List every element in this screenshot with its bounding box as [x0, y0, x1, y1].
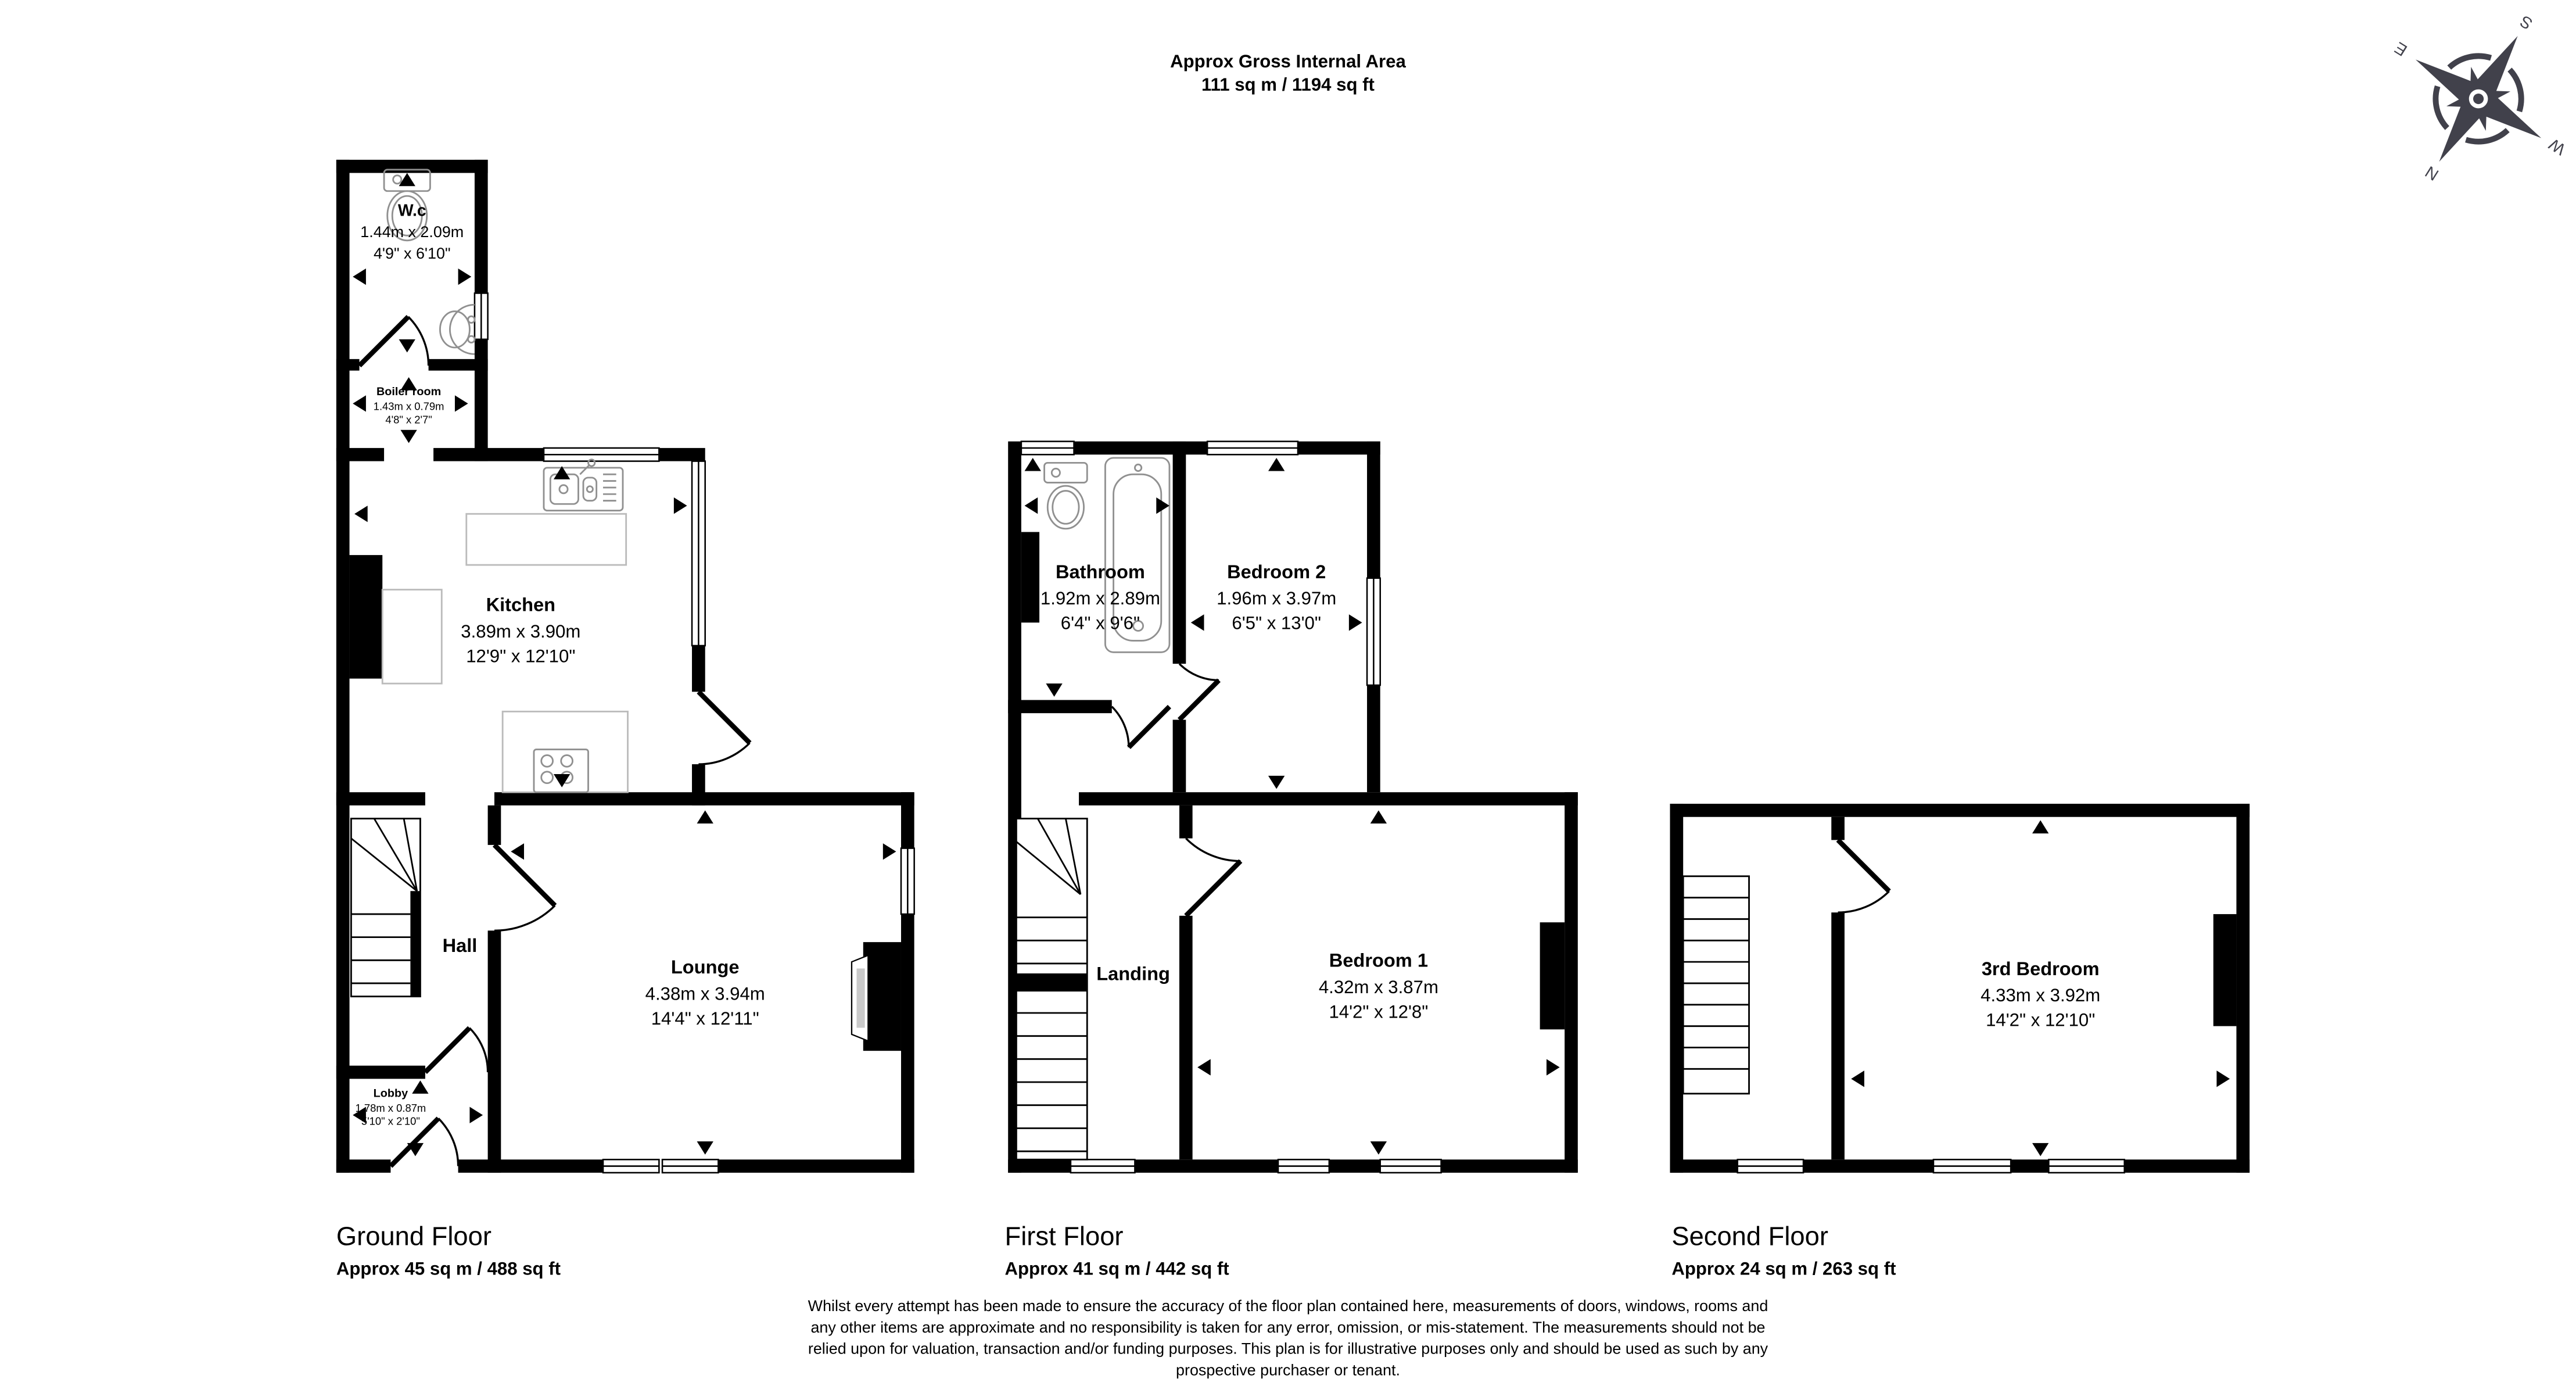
staircase-icon	[351, 819, 420, 997]
dim-arrow-left-icon	[511, 843, 524, 860]
dim-arrow-left-icon	[1851, 1070, 1864, 1087]
second-labels: 3rd Bedroom 4.33m x 3.92m 14'2" x 12'10"	[1981, 958, 2100, 1030]
lounge-room-name: Lounge	[671, 956, 740, 978]
gross-area-value: 111 sq m / 1194 sq ft	[1201, 74, 1375, 95]
fireplace-icon	[852, 955, 868, 1041]
door-icon	[698, 692, 749, 764]
bathroom-dim-metric: 1.92m x 2.89m	[1041, 588, 1160, 608]
ground-walls	[336, 160, 914, 1173]
disclaimer-line: Whilst every attempt has been made to en…	[808, 1297, 1768, 1315]
compass-rose-icon: N S E W	[2344, 0, 2576, 234]
staircase-icon	[1016, 819, 1087, 1160]
boiler-dim-imperial: 4'8" x 2'7"	[385, 413, 432, 425]
boiler-room-name: Boiler room	[376, 385, 441, 398]
kitchen-counter	[467, 514, 626, 565]
dim-arrow-down-icon	[1046, 683, 1062, 697]
door-icon	[1179, 664, 1219, 719]
toilet-icon	[1045, 463, 1088, 528]
lobby-dim-imperial: 5'10" x 2'10"	[361, 1115, 420, 1127]
bedroom3-room-name: 3rd Bedroom	[1982, 958, 2100, 979]
chimney-breast	[1021, 532, 1039, 622]
kitchen-counter	[382, 590, 442, 684]
compass-label-s: S	[2517, 12, 2536, 33]
header: Approx Gross Internal Area 111 sq m / 11…	[1170, 51, 1406, 95]
second-floor-title: Second Floor	[1671, 1222, 1828, 1251]
second-walls	[1670, 804, 2250, 1173]
window-icon	[544, 448, 659, 461]
door-icon	[1112, 707, 1169, 747]
dim-arrow-right-icon	[455, 395, 468, 411]
kitchen-dim-metric: 3.89m x 3.90m	[461, 621, 580, 642]
chimney-breast	[863, 942, 901, 1051]
dim-arrow-right-icon	[469, 1107, 483, 1123]
second-floor-area: Approx 24 sq m / 263 sq ft	[1671, 1259, 1896, 1279]
first-floor-area: Approx 41 sq m / 442 sq ft	[1005, 1259, 1229, 1279]
window-icon	[1021, 442, 1074, 455]
dim-arrow-right-icon	[2216, 1070, 2230, 1087]
dim-arrow-right-icon	[674, 497, 687, 514]
dim-arrow-down-icon	[1370, 1141, 1387, 1155]
ground-floor-plan: W.c 1.44m x 2.09m 4'9" x 6'10" Boiler ro…	[336, 160, 914, 1279]
window-icon	[1207, 442, 1298, 455]
bedroom1-dim-imperial: 14'2" x 12'8"	[1329, 1001, 1428, 1022]
dim-arrow-left-icon	[353, 268, 366, 285]
disclaimer-line: prospective purchaser or tenant.	[1176, 1361, 1400, 1378]
dim-arrow-up-icon	[412, 1080, 428, 1094]
wc-dim-metric: 1.44m x 2.09m	[360, 223, 464, 241]
first-walls	[1008, 442, 1578, 1173]
disclaimer: Whilst every attempt has been made to en…	[808, 1297, 1768, 1379]
landing-room-name: Landing	[1096, 962, 1170, 984]
kitchen-dim-imperial: 12'9" x 12'10"	[466, 646, 575, 666]
bedroom1-dim-metric: 4.32m x 3.87m	[1319, 977, 1438, 997]
dim-arrow-right-icon	[1547, 1059, 1560, 1075]
dim-arrow-left-icon	[1191, 614, 1204, 631]
door-icon	[1838, 840, 1889, 912]
ground-dim-arrows	[353, 173, 896, 1156]
bedroom3-dim-metric: 4.33m x 3.92m	[1981, 985, 2100, 1005]
dim-arrow-down-icon	[399, 339, 415, 353]
ground-floor-title: Ground Floor	[336, 1222, 491, 1251]
ground-windows	[475, 293, 914, 1172]
dim-arrow-right-icon	[1156, 497, 1169, 514]
compass-label-n: N	[2422, 162, 2442, 184]
lounge-dim-metric: 4.38m x 3.94m	[645, 983, 765, 1004]
dim-arrow-right-icon	[883, 843, 896, 860]
window-icon	[475, 293, 488, 339]
dim-arrow-left-icon	[354, 506, 368, 522]
window-icon	[1367, 578, 1380, 685]
compass-label-e: E	[2391, 38, 2410, 59]
dim-arrow-down-icon	[1268, 776, 1285, 789]
bedroom2-room-name: Bedroom 2	[1227, 561, 1326, 582]
door-icon	[360, 317, 429, 366]
lobby-room-name: Lobby	[374, 1087, 408, 1100]
first-floor-plan: Bathroom 1.92m x 2.89m 6'4" x 9'6" Bedro…	[1005, 442, 1578, 1279]
bathroom-room-name: Bathroom	[1056, 561, 1145, 582]
lounge-dim-imperial: 14'4" x 12'11"	[651, 1008, 759, 1029]
wc-room-name: W.c	[398, 201, 426, 220]
chimney-breast	[350, 555, 383, 679]
window-icon	[1071, 1159, 1135, 1173]
ground-fixtures	[351, 170, 868, 1041]
bedroom1-room-name: Bedroom 1	[1329, 950, 1428, 971]
disclaimer-line: relied upon for valuation, transaction a…	[808, 1340, 1768, 1358]
ground-doors	[360, 317, 750, 1166]
second-floor-plan: 3rd Bedroom 4.33m x 3.92m 14'2" x 12'10"…	[1670, 804, 2250, 1279]
gross-area-title: Approx Gross Internal Area	[1170, 51, 1406, 71]
door-icon	[1186, 839, 1240, 916]
dim-arrow-up-icon	[2032, 820, 2048, 833]
boiler-dim-metric: 1.43m x 0.79m	[374, 400, 444, 413]
disclaimer-line: any other items are approximate and no r…	[810, 1319, 1765, 1336]
kitchen-room-name: Kitchen	[486, 593, 555, 615]
bedroom3-dim-imperial: 14'2" x 12'10"	[1986, 1010, 2095, 1030]
window-icon	[662, 1159, 718, 1173]
dim-arrow-up-icon	[1370, 810, 1387, 823]
chimney-breast	[1540, 922, 1565, 1029]
first-floor-title: First Floor	[1005, 1222, 1124, 1251]
window-icon	[1380, 1159, 1441, 1173]
bathroom-dim-imperial: 6'4" x 9'6"	[1061, 613, 1140, 633]
compass-label-w: W	[2546, 134, 2569, 158]
window-icon	[1738, 1159, 1803, 1173]
door-icon	[425, 1028, 488, 1072]
window-icon	[692, 461, 705, 646]
chimney-breast	[2213, 914, 2237, 1026]
dim-arrow-left-icon	[1025, 497, 1038, 514]
dim-arrow-down-icon	[400, 430, 417, 443]
dim-arrow-down-icon	[554, 774, 570, 787]
hall-room-name: Hall	[443, 934, 478, 956]
dim-arrow-up-icon	[1268, 458, 1285, 471]
window-icon	[2048, 1159, 2124, 1173]
kitchen-sink-icon	[544, 460, 623, 511]
window-icon	[901, 848, 914, 914]
dim-arrow-left-icon	[353, 395, 366, 411]
basin-icon	[440, 305, 475, 354]
door-icon	[494, 845, 555, 930]
window-icon	[1933, 1159, 2011, 1173]
ground-floor-area: Approx 45 sq m / 488 sq ft	[336, 1259, 561, 1279]
window-icon	[1278, 1159, 1329, 1173]
window-icon	[603, 1159, 659, 1173]
dim-arrow-up-icon	[1025, 458, 1041, 471]
bedroom2-dim-metric: 1.96m x 3.97m	[1217, 588, 1336, 608]
bedroom2-dim-imperial: 6'5" x 13'0"	[1232, 613, 1321, 633]
dim-arrow-down-icon	[2032, 1143, 2048, 1156]
wc-dim-imperial: 4'9" x 6'10"	[374, 245, 451, 262]
staircase-icon	[1683, 876, 1749, 1094]
dim-arrow-right-icon	[458, 268, 472, 285]
floor-plan-canvas: Approx Gross Internal Area 111 sq m / 11…	[0, 0, 2576, 1400]
dim-arrow-left-icon	[1197, 1059, 1211, 1075]
lobby-dim-metric: 1.78m x 0.87m	[356, 1102, 426, 1114]
dim-arrow-down-icon	[697, 1141, 713, 1155]
dim-arrow-up-icon	[697, 810, 713, 823]
dim-arrow-right-icon	[1349, 614, 1362, 631]
